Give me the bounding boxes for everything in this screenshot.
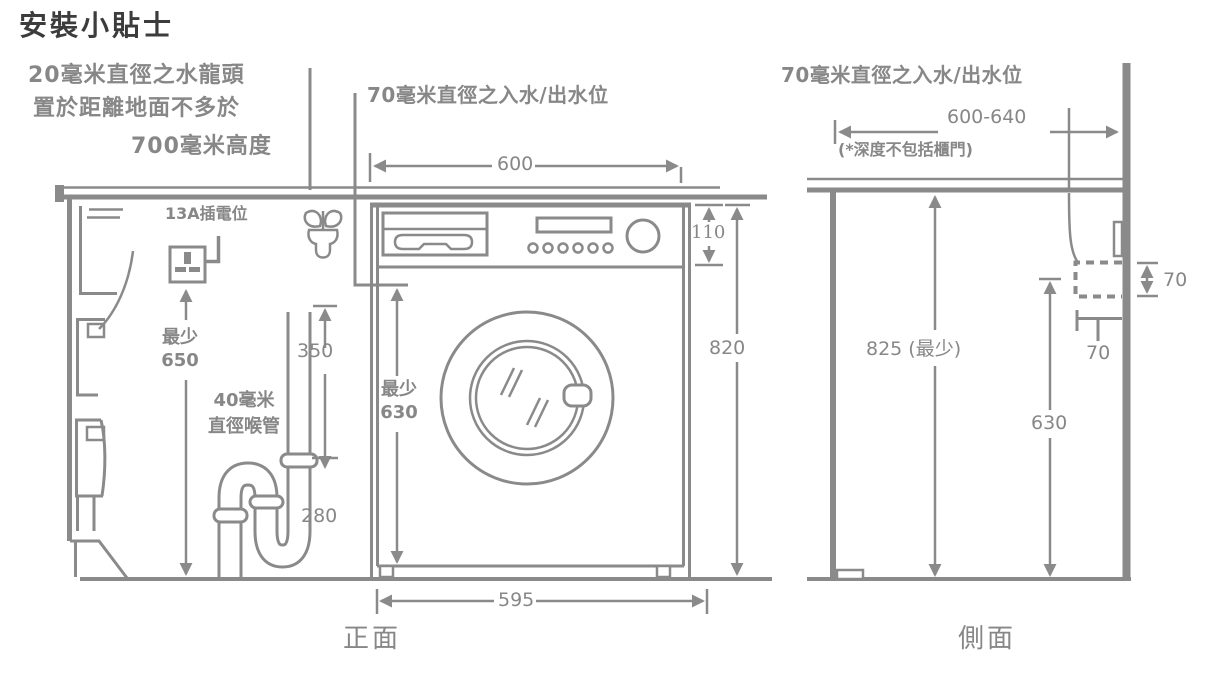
side-inlet-note: 70毫米直徑之入水/出水位 <box>781 64 1023 87</box>
dim-standpipe-value: 350 <box>297 341 333 363</box>
detergent-drawer <box>383 213 487 255</box>
dim-70-hole-height <box>1137 263 1158 296</box>
counter-top <box>55 185 767 202</box>
dim-350-standpipe <box>312 306 338 467</box>
water-tap-icon <box>305 211 341 258</box>
dim-hole-height-value: 70 <box>1163 270 1187 292</box>
front-inlet-note: 70毫米直徑之入水/出水位 <box>367 84 609 107</box>
dim-door-min-label: 最少 <box>381 379 417 400</box>
dim-hole-depth-value: 70 <box>1086 343 1110 365</box>
dim-70-hole-depth <box>1077 310 1122 341</box>
dim-height-min-value: 825 (最少) <box>866 339 961 361</box>
machine-foot <box>380 566 393 577</box>
dim-door-min: 最少 630 <box>375 378 423 424</box>
display-panel <box>537 218 611 232</box>
dim-depth-range-value: 600-640 <box>947 107 1026 129</box>
machine-foot <box>657 566 670 577</box>
dim-820-total-height <box>725 205 750 574</box>
inlet-outlet-dashed-box <box>1076 263 1123 297</box>
power-socket-icon <box>170 236 219 282</box>
dim-door-min-value: 630 <box>380 402 418 423</box>
dim-bottom-width-value: 595 <box>498 590 534 612</box>
machine-foot-side <box>837 570 863 579</box>
conduit <box>205 236 219 262</box>
tap-note-line1: 20毫米直徑之水龍頭 <box>28 63 245 88</box>
pedestal-base <box>70 541 127 578</box>
dim-total-height-value: 820 <box>709 338 745 360</box>
front-view-caption: 正面 <box>343 625 401 655</box>
page-title: 安裝小貼士 <box>19 10 174 42</box>
dim-595-bottom-width <box>377 589 707 614</box>
drum-door <box>441 312 613 484</box>
installation-tips-diagram: 安裝小貼士 20毫米直徑之水龍頭 置於距離地面不多於 700毫米高度 70毫米直… <box>0 0 1226 679</box>
hose-curve-side <box>1069 193 1077 261</box>
hose-curve-front <box>99 251 133 329</box>
dim-socket-min-value: 650 <box>161 350 199 371</box>
dim-socket-min: 最少 650 <box>156 326 204 372</box>
left-wall-cabinet <box>70 199 134 578</box>
dim-top-width-value: 600 <box>497 154 533 176</box>
pipe-label-line1: 40毫米 <box>213 390 274 411</box>
socket-label: 13A插電位 <box>165 205 248 223</box>
depth-note: (*深度不包括櫃門) <box>838 141 973 159</box>
control-buttons <box>529 244 613 253</box>
tap-note-line3: 700毫米高度 <box>131 134 272 159</box>
dim-inlet-height-value: 630 <box>1031 413 1067 435</box>
dim-socket-min-label: 最少 <box>162 327 198 348</box>
pipe-label: 40毫米 直徑喉管 <box>196 388 292 440</box>
dim-panel-height-value: 110 <box>691 223 725 244</box>
side-counter-top <box>807 179 1125 190</box>
wall-pipe <box>1114 222 1122 256</box>
side-view-caption: 側面 <box>958 625 1016 655</box>
tap-note-line2: 置於距離地面不多於 <box>33 96 240 121</box>
pipe-label-line2: 直徑喉管 <box>208 416 280 437</box>
door-handle <box>564 385 591 406</box>
control-knob <box>627 220 659 252</box>
dim-trap-value: 280 <box>301 506 337 528</box>
